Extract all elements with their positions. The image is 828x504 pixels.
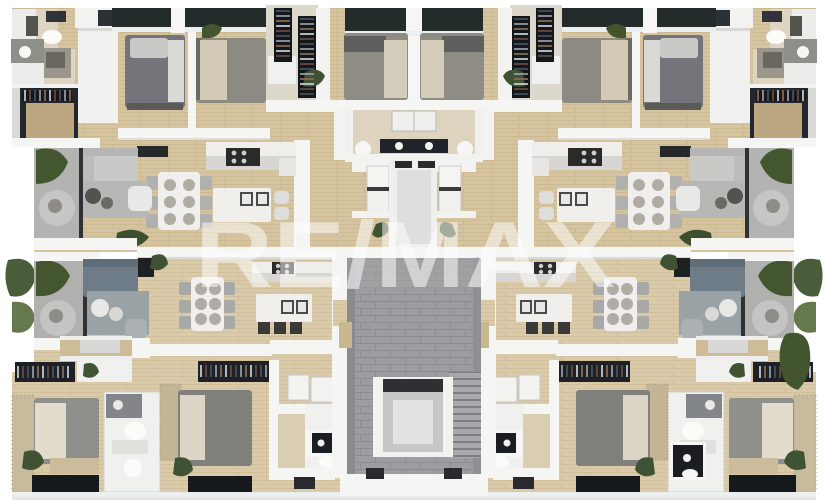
svg-text:RE/MAX: RE/MAX bbox=[195, 202, 615, 307]
